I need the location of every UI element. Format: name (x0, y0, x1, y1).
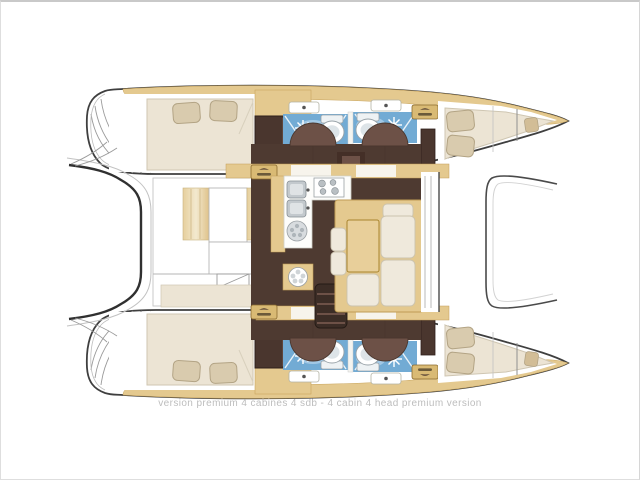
pillow (524, 117, 539, 133)
saloon-front-window (421, 172, 439, 312)
stove-burner-icon (314, 178, 344, 197)
deck-hatch-icon (289, 268, 308, 287)
bed-extension (161, 285, 253, 307)
threshold (356, 165, 396, 177)
cushion (381, 260, 415, 306)
saloon-table (347, 220, 379, 272)
head-partition (348, 112, 353, 145)
screenshot-frame: version premium 4 cabines 4 sdb - 4 cabi… (0, 0, 640, 480)
round-basin-icon (287, 221, 307, 241)
curtain (183, 188, 209, 240)
cupboard (209, 188, 247, 242)
dinette (331, 200, 423, 312)
plan-caption: version premium 4 cabines 4 sdb - 4 cabi… (1, 398, 639, 409)
foredeck-trampoline (486, 176, 557, 308)
cushion (347, 274, 379, 306)
cushion (381, 216, 415, 258)
locker (421, 129, 435, 166)
cushion (331, 228, 346, 251)
cushion (331, 252, 346, 275)
counter (271, 176, 285, 252)
saloon (226, 123, 449, 361)
threshold (291, 165, 331, 177)
